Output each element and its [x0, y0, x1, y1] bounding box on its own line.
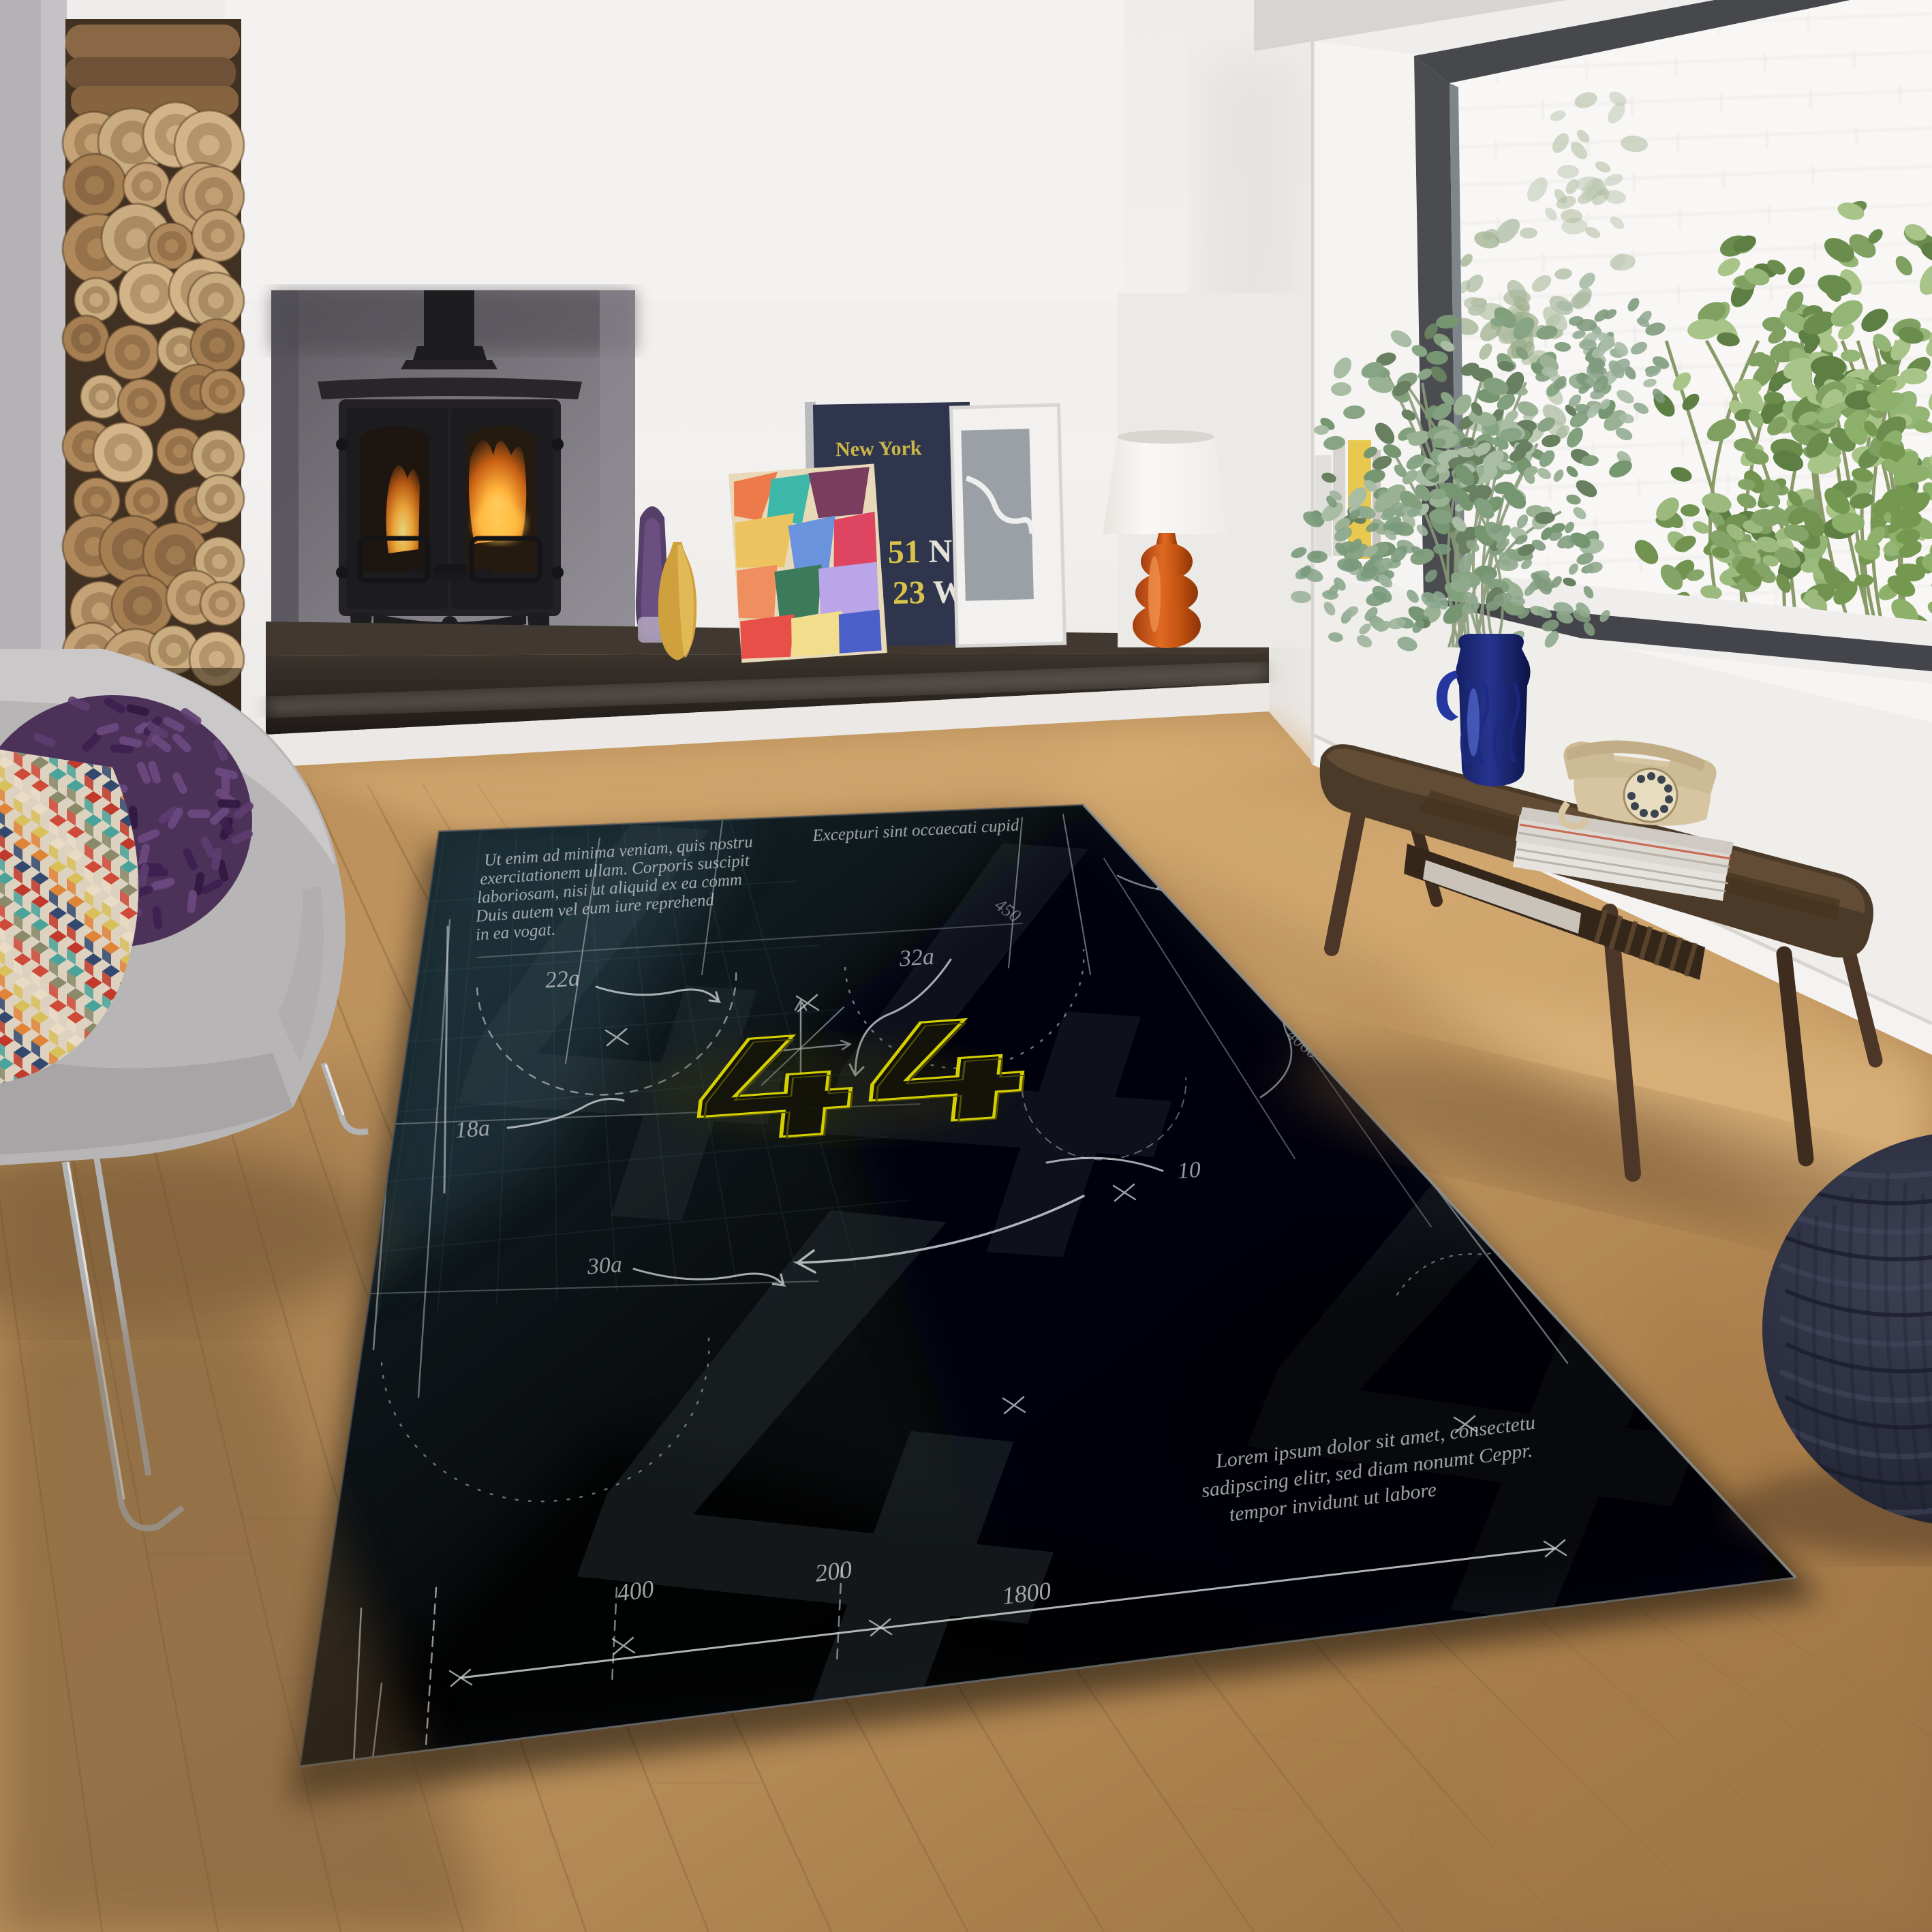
svg-text:30a: 30a [586, 1252, 623, 1280]
svg-text:10: 10 [1177, 1157, 1201, 1184]
svg-text:18a: 18a [455, 1116, 491, 1143]
svg-text:200: 200 [814, 1555, 853, 1586]
svg-text:32a: 32a [898, 944, 935, 972]
svg-text:22a: 22a [545, 966, 581, 993]
svg-text:New York: New York [835, 437, 922, 461]
svg-text:400: 400 [615, 1575, 655, 1606]
